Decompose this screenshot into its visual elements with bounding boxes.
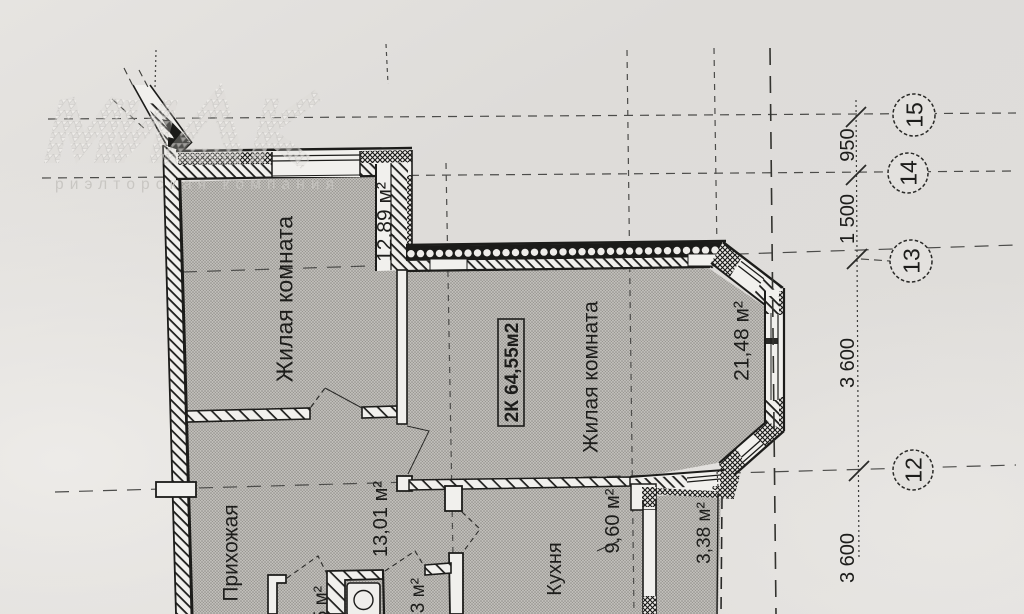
svg-text:Кухня: Кухня bbox=[544, 542, 566, 596]
svg-text:2К 64,55м2: 2К 64,55м2 bbox=[502, 323, 523, 423]
svg-text:21,48 м²: 21,48 м² bbox=[731, 301, 754, 381]
svg-text:12,89 м²: 12,89 м² bbox=[374, 182, 397, 262]
svg-text:3 600: 3 600 bbox=[837, 533, 859, 583]
svg-text:13: 13 bbox=[898, 248, 924, 274]
svg-text:13,01 м²: 13,01 м² bbox=[370, 481, 392, 557]
svg-text:12: 12 bbox=[900, 457, 926, 483]
svg-text:риэлторская компания: риэлторская компания bbox=[55, 176, 340, 193]
svg-text:950: 950 bbox=[837, 128, 859, 161]
svg-text:14: 14 bbox=[895, 160, 921, 186]
svg-text:Жилая комната: Жилая комната bbox=[271, 216, 297, 382]
svg-text:3 600: 3 600 bbox=[837, 338, 859, 388]
svg-text:Прихожая: Прихожая bbox=[220, 504, 243, 601]
svg-text:3,03 м²: 3,03 м² bbox=[408, 578, 429, 614]
svg-text:15: 15 bbox=[901, 102, 927, 128]
svg-text:Жилая комната: Жилая комната bbox=[580, 301, 603, 453]
svg-text:1 500: 1 500 bbox=[837, 194, 859, 244]
svg-text:3,38 м²: 3,38 м² bbox=[694, 502, 715, 564]
svg-text:4,05 м²: 4,05 м² bbox=[311, 586, 332, 614]
